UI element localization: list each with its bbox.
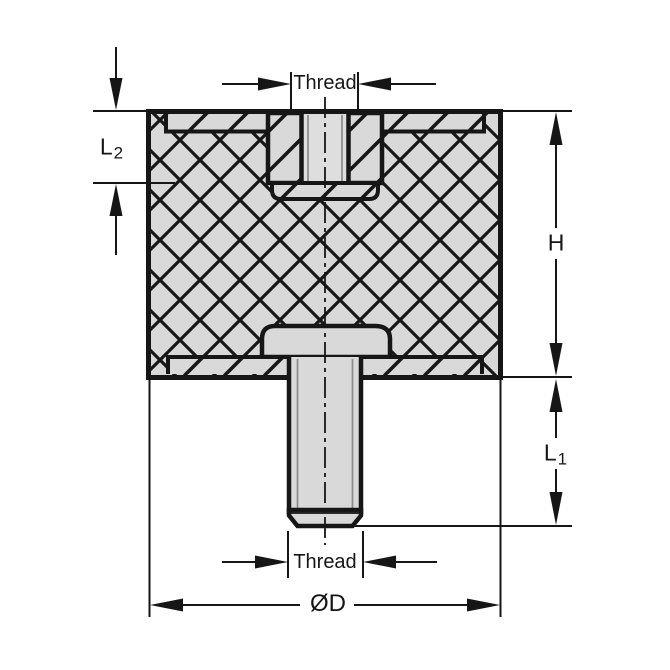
l2-label: L2 bbox=[100, 136, 122, 159]
l1-label: L1 bbox=[544, 442, 566, 465]
l1-subscript: 1 bbox=[558, 450, 567, 469]
thread-top-label: Thread bbox=[293, 73, 356, 93]
h-label: H bbox=[548, 232, 565, 255]
diagram-canvas: Thread L2 H L1 Thread ØD bbox=[0, 0, 670, 670]
stud-head bbox=[262, 326, 390, 357]
diameter-label: ØD bbox=[310, 592, 346, 616]
l2-letter: L bbox=[100, 134, 113, 160]
l2-subscript: 2 bbox=[114, 144, 123, 163]
l1-letter: L bbox=[544, 440, 557, 466]
thread-bottom-label: Thread bbox=[293, 552, 356, 572]
dim-l1 bbox=[354, 379, 572, 526]
